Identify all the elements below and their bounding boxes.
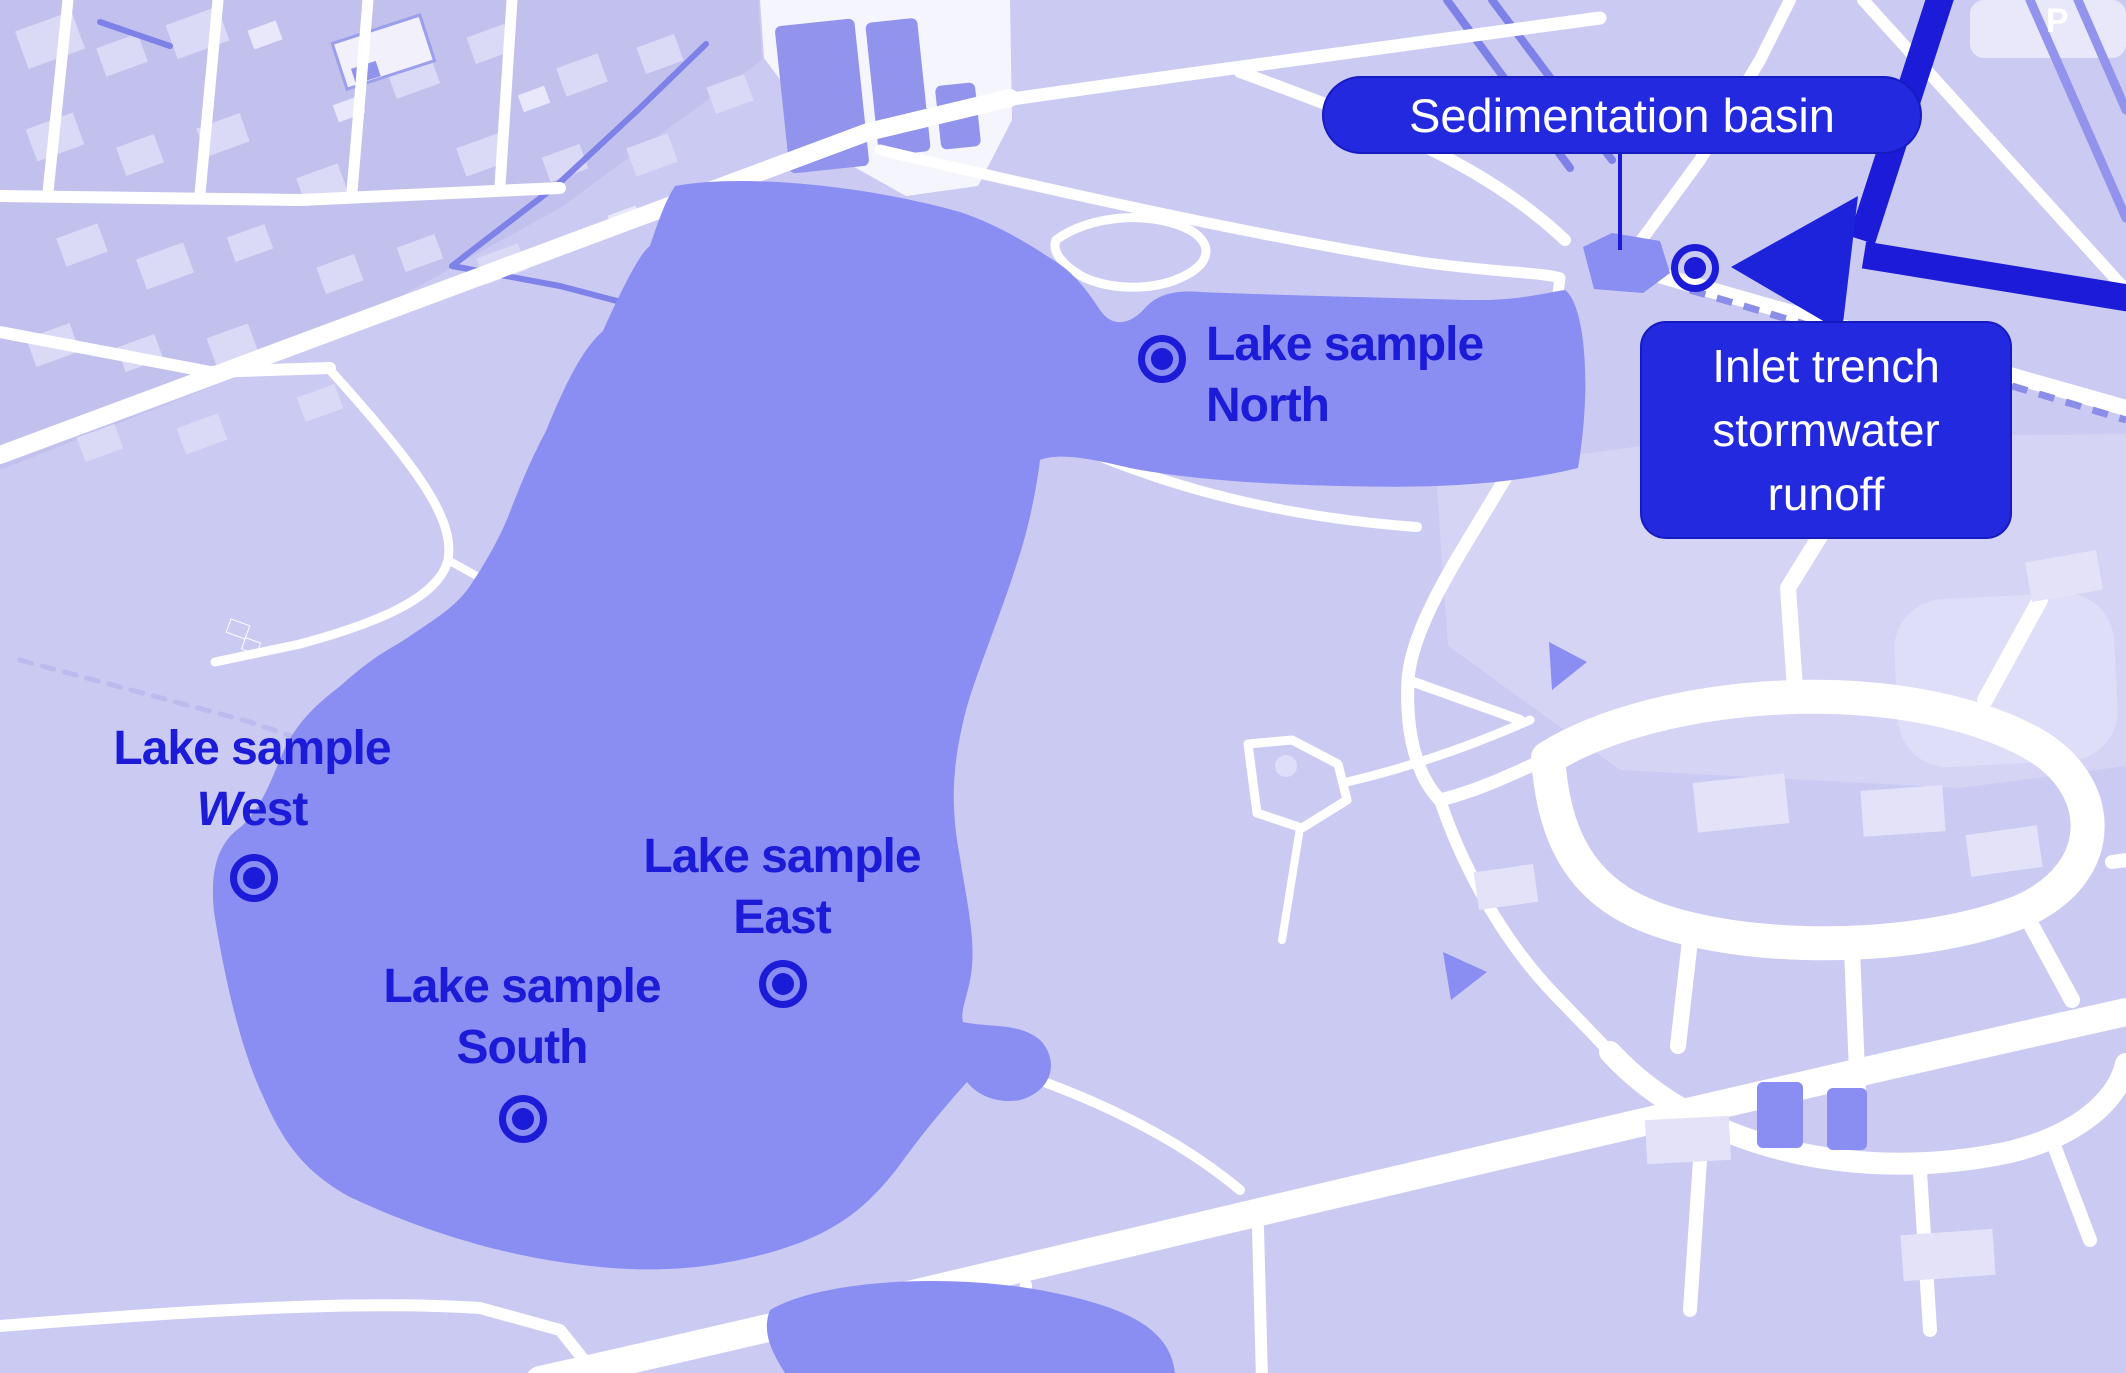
basemap — [0, 0, 2126, 1373]
trail-clearing — [1275, 755, 1297, 777]
callout-line: runoff — [1768, 462, 1885, 526]
sample-marker-west — [230, 854, 278, 902]
basin-marker — [1671, 244, 1719, 292]
callout-line: Inlet trench — [1712, 334, 1940, 398]
label-line: Lake sample — [1206, 314, 1483, 375]
callout-label: Sedimentation basin — [1409, 88, 1835, 143]
callout-sedimentation-basin: Sedimentation basin — [1322, 76, 1922, 154]
annotated-map: P Lake sample North Lake sample West Lak… — [0, 0, 2126, 1373]
sample-marker-south — [499, 1095, 547, 1143]
label-line: South — [322, 1017, 722, 1078]
label-line: North — [1206, 375, 1483, 436]
callout-inlet-trench: Inlet trench stormwater runoff — [1640, 321, 2012, 539]
label-sample-east: Lake sample East — [582, 826, 982, 948]
parking-icon: P — [2046, 2, 2069, 41]
sample-marker-east — [759, 960, 807, 1008]
label-line: Lake sample — [322, 956, 722, 1017]
label-line: East — [582, 887, 982, 948]
label-line: Lake sample — [52, 718, 452, 779]
label-line: West — [52, 779, 452, 840]
label-sample-south: Lake sample South — [322, 956, 722, 1078]
sample-marker-north — [1138, 335, 1186, 383]
label-sample-west: Lake sample West — [52, 718, 452, 840]
label-sample-north: Lake sample North — [1206, 314, 1483, 436]
label-line: Lake sample — [582, 826, 982, 887]
callout-line: stormwater — [1712, 398, 1939, 462]
